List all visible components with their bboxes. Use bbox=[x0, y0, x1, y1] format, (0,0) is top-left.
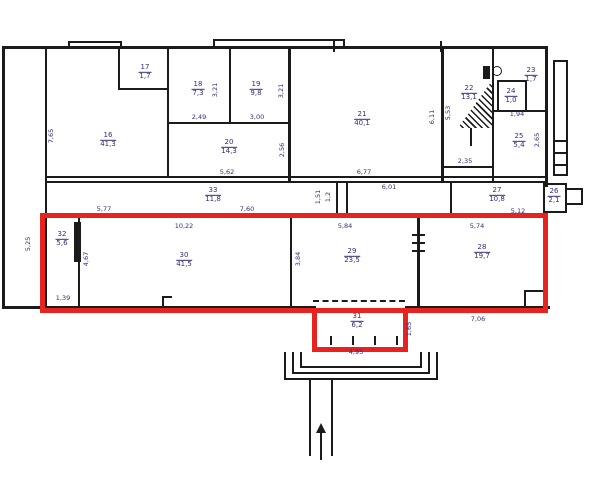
labels-layer: 1641,3171,7187,3199,82014,32140,12213,12… bbox=[0, 0, 607, 480]
dimension-label: 7,06 bbox=[471, 315, 485, 323]
dimension-label: 5,77 bbox=[97, 205, 111, 213]
room-label-29: 2923,5 bbox=[344, 248, 360, 264]
dimension-label: 5,25 bbox=[24, 237, 32, 251]
dimension-label: 5,74 bbox=[470, 222, 484, 230]
dimension-label: 1,2 bbox=[324, 192, 332, 202]
room-label-24: 241,0 bbox=[505, 88, 518, 104]
dimension-label: 5,12 bbox=[511, 207, 525, 215]
room-label-23: 231,7 bbox=[525, 67, 538, 83]
room-label-20: 2014,3 bbox=[221, 139, 237, 155]
room-area: 1,7 bbox=[139, 73, 152, 81]
dimension-label: 5,62 bbox=[220, 168, 234, 176]
dimension-label: 7,60 bbox=[240, 205, 254, 213]
room-label-21: 2140,1 bbox=[354, 111, 370, 127]
dimension-label: 2,56 bbox=[278, 143, 286, 157]
room-label-33: 3311,8 bbox=[205, 187, 221, 203]
dimension-label: 6,01 bbox=[382, 183, 396, 191]
dimension-label: 1,51 bbox=[314, 190, 322, 204]
room-area: 6,2 bbox=[351, 322, 364, 330]
room-area: 23,5 bbox=[344, 257, 360, 265]
dimension-label: 2,49 bbox=[192, 113, 206, 121]
dimension-label: 4,67 bbox=[82, 252, 90, 266]
dimension-label: 2,65 bbox=[533, 133, 541, 147]
room-label-26: 262,1 bbox=[548, 188, 561, 204]
room-label-16: 1641,3 bbox=[100, 132, 116, 148]
room-label-27: 2710,8 bbox=[489, 187, 505, 203]
dimension-label: 7,65 bbox=[47, 129, 55, 143]
dimension-label: 3,84 bbox=[294, 252, 302, 266]
room-area: 9,8 bbox=[250, 90, 263, 98]
dimension-label: 1,94 bbox=[510, 110, 524, 118]
room-label-28: 2819,7 bbox=[474, 244, 490, 260]
dimension-label: 3,21 bbox=[211, 83, 219, 97]
room-area: 14,3 bbox=[221, 148, 237, 156]
room-area: 5,4 bbox=[513, 142, 526, 150]
room-area: 10,8 bbox=[489, 196, 505, 204]
room-label-22: 2213,1 bbox=[461, 85, 477, 101]
room-label-19: 199,8 bbox=[250, 81, 263, 97]
room-area: 11,8 bbox=[205, 196, 221, 204]
room-area: 2,1 bbox=[548, 197, 561, 205]
room-label-31: 316,2 bbox=[351, 313, 364, 329]
dimension-label: 1,39 bbox=[56, 294, 70, 302]
dimension-label: 5,84 bbox=[338, 222, 352, 230]
floor-plan: 1641,3171,7187,3199,82014,32140,12213,12… bbox=[0, 0, 607, 480]
dimension-label: 1,65 bbox=[405, 322, 413, 336]
room-label-25: 255,4 bbox=[513, 133, 526, 149]
dimension-label: 6,77 bbox=[357, 168, 371, 176]
dimension-label: 10,22 bbox=[175, 222, 194, 230]
dimension-label: 5,53 bbox=[444, 106, 452, 120]
room-label-32: 325,6 bbox=[56, 231, 69, 247]
room-label-30: 3041,5 bbox=[176, 252, 192, 268]
room-area: 7,3 bbox=[192, 90, 205, 98]
dimension-label: 4,95 bbox=[349, 348, 363, 356]
room-area: 40,1 bbox=[354, 120, 370, 128]
room-area: 19,7 bbox=[474, 253, 490, 261]
room-label-17: 171,7 bbox=[139, 64, 152, 80]
dimension-label: 3,00 bbox=[250, 113, 264, 121]
room-area: 5,6 bbox=[56, 240, 69, 248]
room-label-18: 187,3 bbox=[192, 81, 205, 97]
dimension-label: 3,21 bbox=[277, 84, 285, 98]
room-area: 13,1 bbox=[461, 94, 477, 102]
dimension-label: 6,11 bbox=[428, 110, 436, 124]
room-area: 1,7 bbox=[525, 76, 538, 84]
room-area: 41,3 bbox=[100, 141, 116, 149]
dimension-label: 2,35 bbox=[458, 157, 472, 165]
room-area: 1,0 bbox=[505, 97, 518, 105]
room-area: 41,5 bbox=[176, 261, 192, 269]
